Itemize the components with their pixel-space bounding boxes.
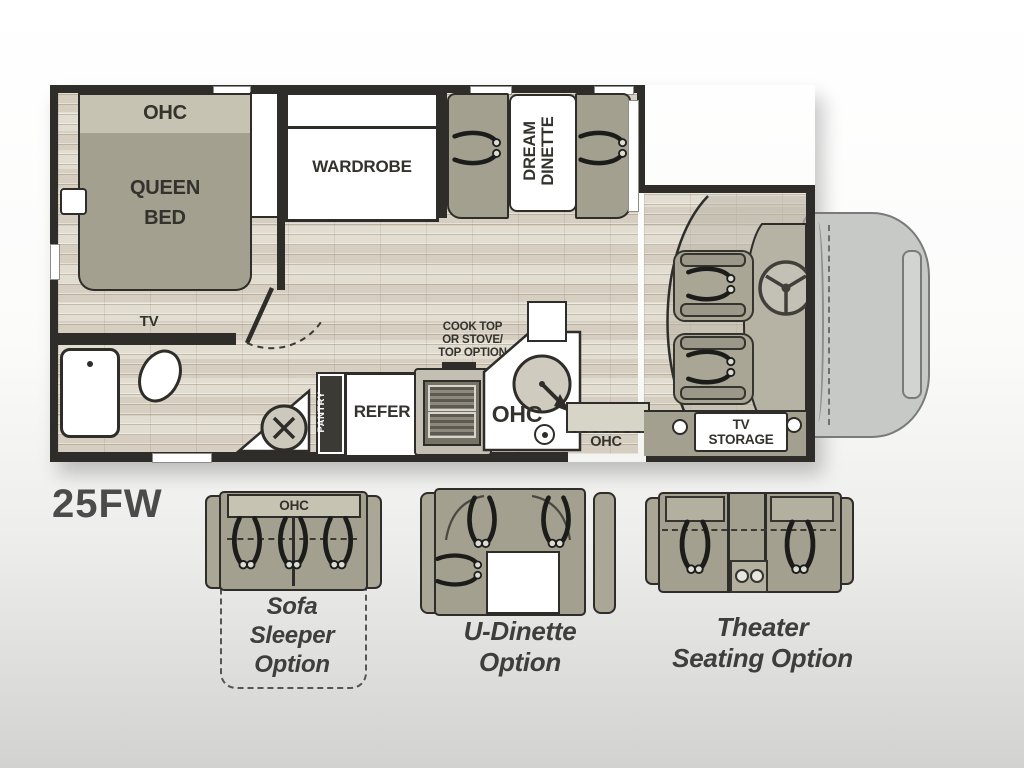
bath-corner-sink <box>236 386 314 454</box>
window <box>50 244 60 280</box>
toilet-icon <box>128 340 192 410</box>
window <box>628 100 639 212</box>
sofa-option-label: Sofa Sleeper Option <box>222 593 362 679</box>
stove-controls <box>442 362 476 370</box>
seatbelt-icon <box>539 494 573 548</box>
seat-back-bar <box>680 303 746 317</box>
steering-wheel-icon <box>760 262 810 314</box>
theater-option-label: Theater Seating Option <box>655 612 870 674</box>
burner-grate <box>428 412 476 438</box>
seatbelt-icon <box>577 128 627 168</box>
seatbelt-icon <box>276 514 310 570</box>
seatbelt-icon <box>780 518 820 574</box>
kitchen-counter <box>482 330 582 452</box>
tv-label: TV <box>131 314 167 331</box>
medicine-cabinet <box>527 301 567 342</box>
seatbelt-icon <box>684 348 736 386</box>
stove <box>414 368 492 456</box>
seat-back-bar <box>680 386 746 400</box>
floorplan-page: OHC QUEEN BED WARDROBE DREAM DINETTE TV … <box>0 0 1024 768</box>
stove-top <box>423 380 481 446</box>
seatbelt-icon <box>434 550 482 590</box>
pantry-label: PANTRY <box>317 372 341 452</box>
nightstand <box>60 188 87 215</box>
tv-storage-label: TV STORAGE <box>696 414 786 448</box>
bedside-cabinet <box>250 92 280 218</box>
truck-grille <box>902 250 922 399</box>
cupholder-icon <box>735 569 749 583</box>
sofa-sleeper: OHC <box>219 491 368 591</box>
cab-body-dashed-line <box>828 225 830 425</box>
burner-grate <box>428 385 476 411</box>
seatbelt-icon <box>465 494 499 548</box>
dinette-table-label: DREAM DINETTE <box>521 96 561 206</box>
wall-wardrobe-right <box>436 92 447 218</box>
seatbelt-icon <box>675 518 715 574</box>
wardrobe-shelf-line <box>288 126 436 129</box>
shower <box>60 348 120 438</box>
speaker-icon <box>786 417 802 433</box>
seatbelt-icon <box>451 128 501 168</box>
wardrobe-label: WARDROBE <box>288 157 436 176</box>
queen-bed: QUEEN BED <box>78 133 252 291</box>
seatbelt-icon <box>230 514 264 570</box>
wall-bed-divider <box>277 92 285 290</box>
bed-overhead-cabinet: OHC <box>78 93 252 135</box>
cab-seat-passenger <box>673 333 754 405</box>
refer-label: REFER <box>347 375 417 421</box>
wall-cab-top <box>637 185 815 193</box>
cab-seat-driver <box>673 250 754 322</box>
seatbelt-icon <box>321 514 355 570</box>
cupholder-icon <box>750 569 764 583</box>
queen-bed-label: QUEEN BED <box>80 133 250 233</box>
theater-seating <box>658 492 842 593</box>
refrigerator: REFER <box>344 372 420 458</box>
tv-storage: TV STORAGE <box>694 412 788 452</box>
theater-console <box>730 560 768 593</box>
wardrobe: WARDROBE <box>285 92 439 222</box>
entry-ohc-dashed-line <box>566 431 646 433</box>
entry-cabinet <box>566 402 650 433</box>
seatbelt-icon <box>684 265 736 303</box>
kitchen-ohc-label: OHC <box>486 402 548 428</box>
speaker-icon <box>672 419 688 435</box>
model-label: 25FW <box>52 482 163 527</box>
entry-ohc-label: OHC <box>572 434 640 450</box>
door-swing-icon <box>240 280 345 360</box>
wall-cab-right <box>806 185 815 462</box>
udinette-table <box>486 551 560 614</box>
udinette-armrest <box>593 492 616 614</box>
window <box>152 453 212 463</box>
bed-ohc-label: OHC <box>80 95 250 124</box>
shower-drain <box>87 361 93 367</box>
vent-fan-icon <box>534 424 555 445</box>
sofa-ohc-label: OHC <box>229 496 359 513</box>
udinette-option-label: U-Dinette Option <box>425 616 615 678</box>
